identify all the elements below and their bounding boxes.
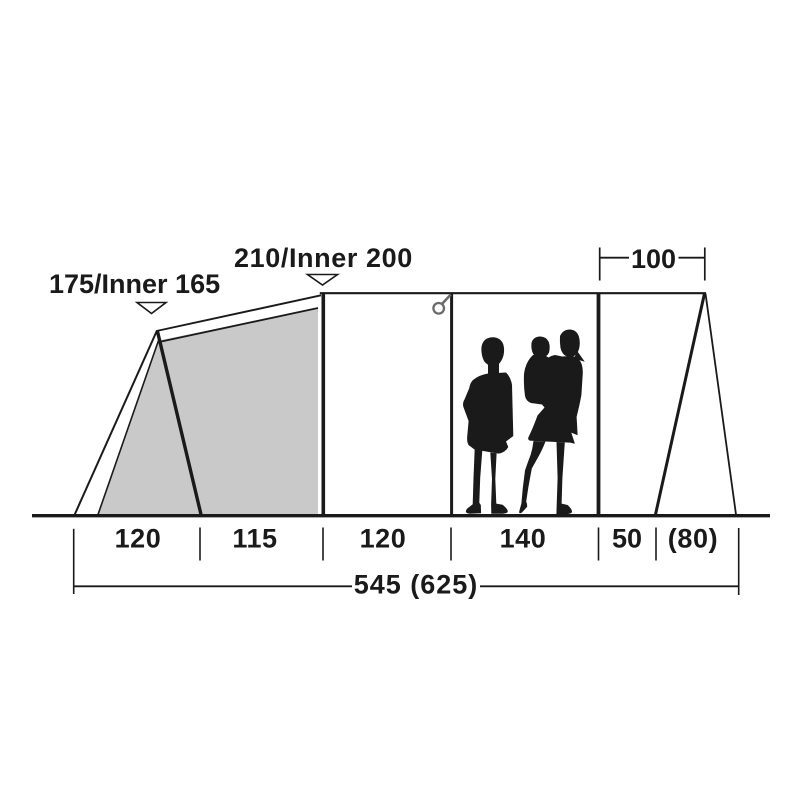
svg-text:(80): (80) xyxy=(668,524,718,554)
svg-text:175/Inner 165: 175/Inner 165 xyxy=(49,269,220,299)
svg-text:120: 120 xyxy=(360,524,407,554)
svg-text:545 (625): 545 (625) xyxy=(354,570,479,600)
svg-text:140: 140 xyxy=(500,524,547,554)
svg-text:50: 50 xyxy=(612,524,642,554)
svg-text:100: 100 xyxy=(631,244,676,274)
svg-text:120: 120 xyxy=(115,524,162,554)
svg-text:115: 115 xyxy=(232,524,277,554)
svg-text:210/Inner 200: 210/Inner 200 xyxy=(234,243,413,273)
